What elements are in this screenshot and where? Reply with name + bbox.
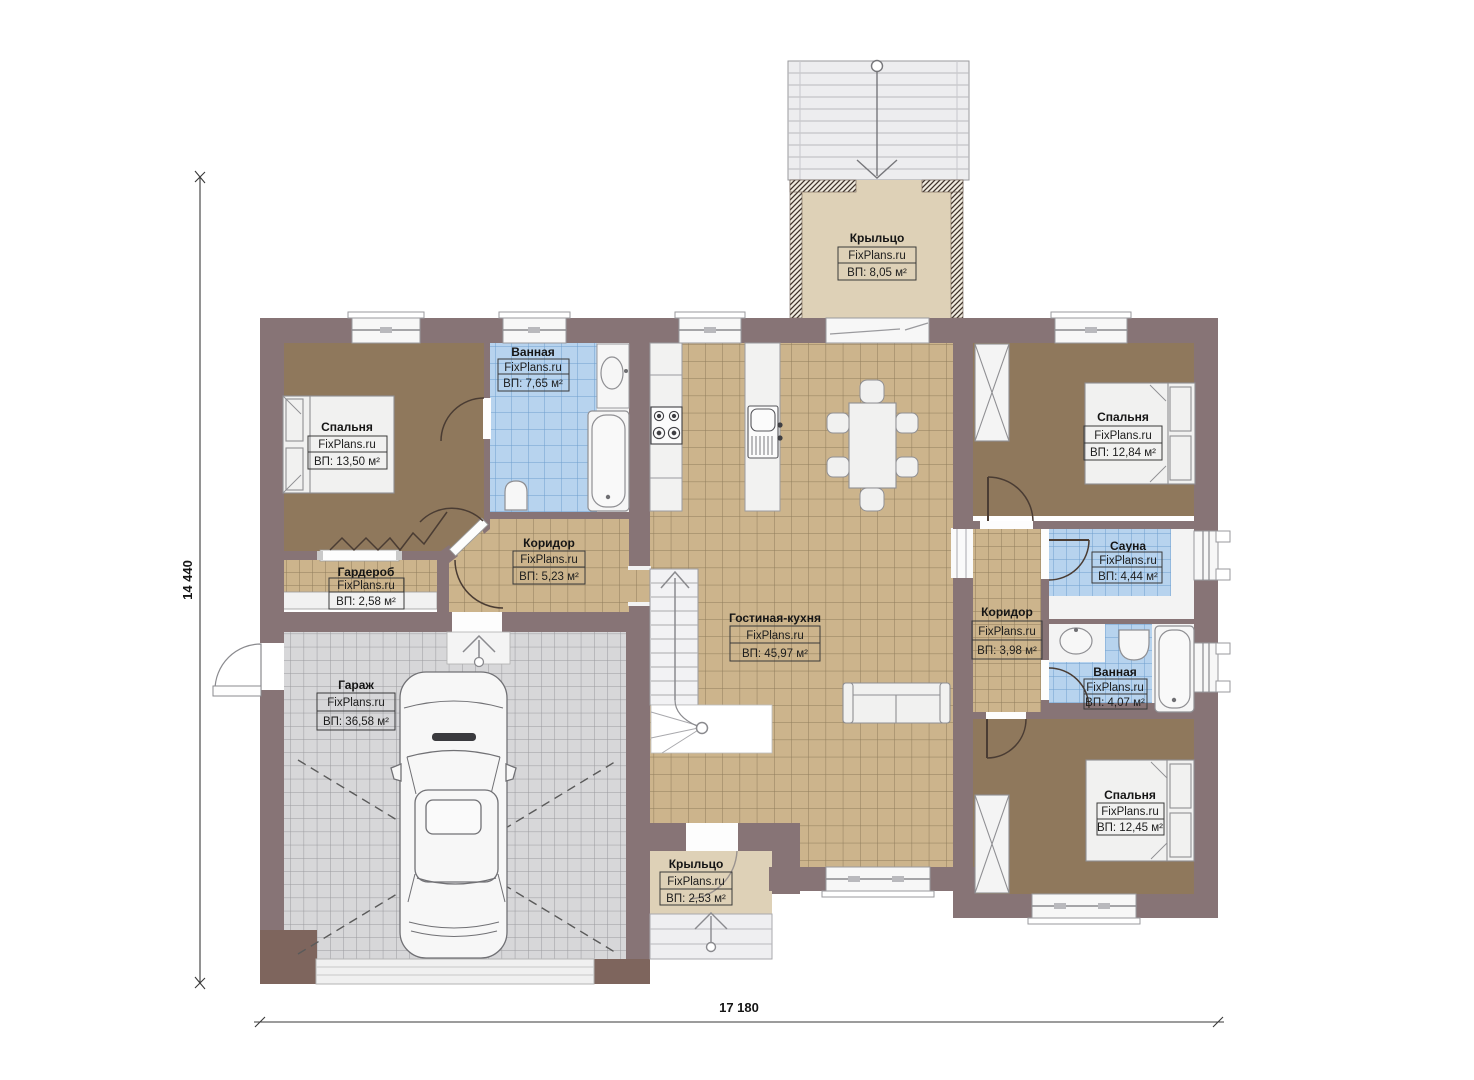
svg-text:Спальня: Спальня xyxy=(321,420,373,434)
svg-text:FixPlans.ru: FixPlans.ru xyxy=(318,439,376,451)
svg-text:17 180: 17 180 xyxy=(719,1000,759,1015)
svg-text:ВП: 4,07 м²: ВП: 4,07 м² xyxy=(1085,697,1145,709)
svg-text:ВП: 2,58 м²: ВП: 2,58 м² xyxy=(336,596,396,608)
svg-text:Крыльцо: Крыльцо xyxy=(850,231,905,245)
svg-text:ВП: 5,23 м²: ВП: 5,23 м² xyxy=(519,571,579,583)
svg-text:Спальня: Спальня xyxy=(1097,410,1149,424)
svg-text:FixPlans.ru: FixPlans.ru xyxy=(337,580,395,592)
svg-text:Гардероб: Гардероб xyxy=(338,565,395,579)
svg-text:Ванная: Ванная xyxy=(1093,665,1137,679)
svg-text:FixPlans.ru: FixPlans.ru xyxy=(1086,682,1144,694)
svg-text:FixPlans.ru: FixPlans.ru xyxy=(1094,430,1152,442)
svg-text:Гараж: Гараж xyxy=(338,678,374,692)
svg-text:14 440: 14 440 xyxy=(180,560,195,600)
svg-text:Спальня: Спальня xyxy=(1104,788,1156,802)
svg-text:FixPlans.ru: FixPlans.ru xyxy=(667,876,725,888)
svg-text:ВП: 4,44 м²: ВП: 4,44 м² xyxy=(1098,571,1158,583)
svg-text:ВП: 2,53 м²: ВП: 2,53 м² xyxy=(666,893,726,905)
svg-text:FixPlans.ru: FixPlans.ru xyxy=(520,554,578,566)
svg-text:FixPlans.ru: FixPlans.ru xyxy=(978,626,1036,638)
svg-text:ВП: 45,97 м²: ВП: 45,97 м² xyxy=(742,648,808,660)
svg-text:ВП: 3,98 м²: ВП: 3,98 м² xyxy=(977,645,1037,657)
svg-text:ВП: 7,65 м²: ВП: 7,65 м² xyxy=(503,378,563,390)
svg-text:ВП: 12,84 м²: ВП: 12,84 м² xyxy=(1090,447,1156,459)
svg-text:FixPlans.ru: FixPlans.ru xyxy=(504,362,562,374)
svg-text:Крыльцо: Крыльцо xyxy=(669,857,724,871)
svg-text:Гостиная-кухня: Гостиная-кухня xyxy=(729,611,821,625)
svg-text:Коридор: Коридор xyxy=(523,536,575,550)
svg-text:Коридор: Коридор xyxy=(981,605,1033,619)
svg-text:ВП: 36,58 м²: ВП: 36,58 м² xyxy=(323,716,389,728)
svg-text:Ванная: Ванная xyxy=(511,345,555,359)
svg-text:FixPlans.ru: FixPlans.ru xyxy=(327,697,385,709)
svg-text:ВП: 12,45 м²: ВП: 12,45 м² xyxy=(1097,822,1163,834)
svg-text:FixPlans.ru: FixPlans.ru xyxy=(1101,806,1159,818)
svg-text:ВП: 8,05 м²: ВП: 8,05 м² xyxy=(847,267,907,279)
svg-text:FixPlans.ru: FixPlans.ru xyxy=(1099,555,1157,567)
svg-text:Сауна: Сауна xyxy=(1110,539,1146,553)
svg-text:FixPlans.ru: FixPlans.ru xyxy=(746,630,804,642)
svg-text:FixPlans.ru: FixPlans.ru xyxy=(848,250,906,262)
svg-text:ВП: 13,50 м²: ВП: 13,50 м² xyxy=(314,456,380,468)
